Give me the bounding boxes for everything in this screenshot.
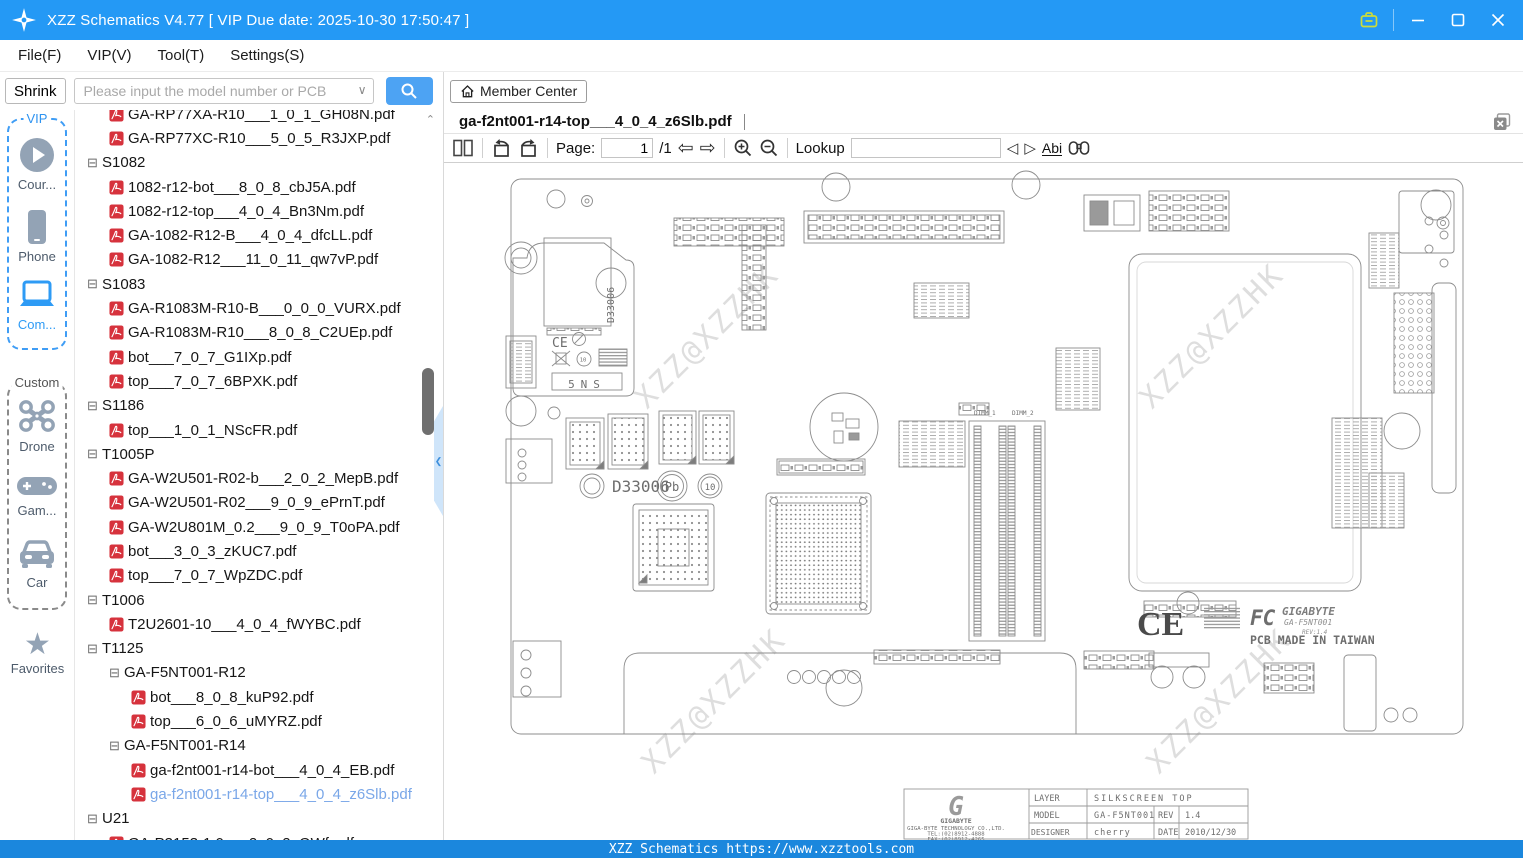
tree-item-label: S1082 bbox=[102, 154, 145, 171]
svg-text:XZZ@XZZHK: XZZ@XZZHK bbox=[635, 622, 794, 781]
sidebar-item-label: Cour... bbox=[18, 177, 56, 192]
tree-item-label: T1005P bbox=[102, 446, 155, 463]
tree-file[interactable]: GA-P3153-1.0___2_0_2_QWf.pdf bbox=[75, 831, 419, 840]
collapse-icon[interactable]: ⊟ bbox=[109, 665, 124, 681]
svg-text:GIGABYTE: GIGABYTE bbox=[940, 817, 971, 825]
pdf-icon bbox=[109, 495, 124, 510]
pdf-icon bbox=[109, 471, 124, 486]
tree-item-label: top___7_0_7_WpZDC.pdf bbox=[128, 567, 302, 584]
pdf-icon bbox=[109, 228, 124, 243]
tree-file[interactable]: top___7_0_7_WpZDC.pdf bbox=[75, 564, 419, 588]
two-page-view-icon[interactable] bbox=[452, 139, 474, 157]
collapse-icon[interactable]: ⊟ bbox=[87, 641, 102, 657]
page-label: Page: bbox=[556, 140, 595, 157]
svg-text:DESIGNER: DESIGNER bbox=[1031, 828, 1070, 837]
tree-item-label: 1082-r12-bot___8_0_8_cbJ5A.pdf bbox=[128, 179, 356, 196]
collapse-icon[interactable]: ⊟ bbox=[87, 811, 102, 827]
pdf-icon bbox=[109, 204, 124, 219]
tree-file[interactable]: top___7_0_7_6BPXK.pdf bbox=[75, 369, 419, 393]
page-total: /1 bbox=[659, 140, 672, 157]
scroll-up-icon[interactable]: ⌃ bbox=[426, 113, 435, 126]
collapse-icon[interactable]: ⊟ bbox=[87, 398, 102, 414]
close-all-tabs-icon[interactable] bbox=[1493, 113, 1511, 131]
highlight-all-icon[interactable] bbox=[1068, 139, 1090, 157]
car-icon bbox=[16, 538, 58, 572]
tree-item-label: GA-RP77XA-R10___1_0_1_GH08N.pdf bbox=[128, 110, 395, 123]
menu-settings[interactable]: Settings(S) bbox=[217, 47, 317, 64]
tree-file[interactable]: 1082-r12-bot___8_0_8_cbJ5A.pdf bbox=[75, 175, 419, 199]
svg-text:GA-F5NT001: GA-F5NT001 bbox=[1284, 618, 1332, 627]
phone-icon bbox=[20, 208, 54, 246]
match-case-toggle[interactable]: Abi bbox=[1042, 141, 1062, 156]
svg-text:GA-F5NT001: GA-F5NT001 bbox=[1094, 811, 1155, 821]
pdf-icon bbox=[109, 350, 124, 365]
member-center-label: Member Center bbox=[480, 83, 577, 99]
menu-bar: File(F) VIP(V) Tool(T) Settings(S) bbox=[0, 40, 1523, 72]
svg-text:GIGABYTE: GIGABYTE bbox=[1282, 605, 1335, 618]
tree-item-label: GA-W2U501-R02-b___2_0_2_MepB.pdf bbox=[128, 470, 398, 487]
pdf-icon bbox=[109, 568, 124, 583]
member-center-button[interactable]: Member Center bbox=[450, 80, 587, 103]
tree-item-label: GA-R1083M-R10___8_0_8_C2UEp.pdf bbox=[128, 324, 392, 341]
sidebar-item-label: Phone bbox=[18, 249, 56, 264]
tree-item-label: U21 bbox=[102, 810, 130, 827]
pdf-icon bbox=[109, 180, 124, 195]
collapse-icon[interactable]: ⊟ bbox=[87, 592, 102, 608]
sidebar-item-game[interactable]: Gam... bbox=[0, 472, 74, 520]
svg-text:2010/12/30: 2010/12/30 bbox=[1185, 828, 1236, 838]
lookup-input[interactable] bbox=[851, 138, 1001, 158]
tree-file[interactable]: GA-1082-R12___11_0_11_qw7vP.pdf bbox=[75, 248, 419, 272]
tree-file[interactable]: GA-W2U501-R02___9_0_9_ePrnT.pdf bbox=[75, 491, 419, 515]
star-icon: ★ bbox=[0, 630, 75, 660]
drone-icon bbox=[17, 398, 57, 436]
sidebar-item-label: Drone bbox=[19, 439, 54, 454]
titlebar-separator bbox=[1393, 9, 1394, 31]
page-forward-icon[interactable]: ⇨ bbox=[700, 139, 716, 158]
tree-item-label: T1006 bbox=[102, 592, 145, 609]
tree-folder[interactable]: ⊟GA-F5NT001-R14 bbox=[75, 734, 419, 758]
tree-item-label: bot___8_0_8_kuP92.pdf bbox=[150, 689, 313, 706]
tree-file[interactable]: ga-f2nt001-r14-top___4_0_4_z6Slb.pdf bbox=[75, 782, 419, 806]
tree-item-label: S1186 bbox=[102, 397, 144, 414]
viewer-toolbar: Page: /1 ⇦ ⇨ Lookup ◁ ▷ Abi bbox=[444, 134, 1523, 163]
menu-vip[interactable]: VIP(V) bbox=[74, 47, 144, 64]
shrink-button[interactable]: Shrink bbox=[5, 78, 66, 104]
tree-folder[interactable]: ⊟S1083 bbox=[75, 272, 419, 296]
tree-file[interactable]: GA-RP77XA-R10___1_0_1_GH08N.pdf bbox=[75, 110, 419, 126]
tree-file[interactable]: 1082-r12-top___4_0_4_Bn3Nm.pdf bbox=[75, 199, 419, 223]
tree-folder[interactable]: ⊟S1186 bbox=[75, 394, 419, 418]
tree-item-label: bot___7_0_7_G1IXp.pdf bbox=[128, 349, 291, 366]
tree-folder[interactable]: ⊟T1125 bbox=[75, 637, 419, 661]
tree-item-label: GA-P3153-1.0___2_0_2_QWf.pdf bbox=[128, 835, 354, 840]
sidebar-item-phone[interactable]: Phone bbox=[0, 208, 74, 266]
pdf-icon bbox=[109, 374, 124, 389]
pdf-icon bbox=[109, 423, 124, 438]
tree-item-label: T2U2601-10___4_0_4_fWYBC.pdf bbox=[128, 616, 361, 633]
tree-file[interactable]: GA-RP77XC-R10___5_0_5_R3JXP.pdf bbox=[75, 126, 419, 150]
svg-text:cherry: cherry bbox=[1094, 828, 1131, 838]
tree-folder[interactable]: ⊟S1082 bbox=[75, 151, 419, 175]
play-icon bbox=[18, 136, 56, 174]
tree-file[interactable]: GA-R1083M-R10___8_0_8_C2UEp.pdf bbox=[75, 321, 419, 345]
viewer-tab-bar: ga-f2nt001-r14-top___4_0_4_z6Slb.pdf bbox=[444, 110, 1523, 134]
sidebar-item-drone[interactable]: Drone bbox=[0, 398, 74, 456]
tree-item-label: GA-1082-R12___11_0_11_qw7vP.pdf bbox=[128, 251, 378, 268]
tree-scrollbar-thumb[interactable] bbox=[422, 368, 434, 435]
board-geometry bbox=[505, 171, 1463, 734]
svg-text:Pb: Pb bbox=[665, 480, 679, 494]
app-logo-icon bbox=[11, 7, 37, 33]
tree-item-label: GA-W2U801M_0.2___9_0_9_T0oPA.pdf bbox=[128, 519, 400, 536]
tree-item-label: top___7_0_7_6BPXK.pdf bbox=[128, 373, 297, 390]
menu-tool[interactable]: Tool(T) bbox=[145, 47, 218, 64]
sidebar-item-label: Gam... bbox=[17, 503, 56, 518]
pdf-icon bbox=[131, 763, 146, 778]
svg-text:CE: CE bbox=[552, 336, 568, 351]
svg-text:FC: FC bbox=[1250, 606, 1276, 630]
zoom-in-icon[interactable] bbox=[733, 138, 753, 158]
page-back-icon[interactable]: ⇦ bbox=[678, 139, 694, 158]
collapse-icon[interactable]: ⊟ bbox=[87, 446, 102, 462]
tab-separator bbox=[744, 114, 745, 130]
tree-folder[interactable]: ⊟GA-F5NT001-R12 bbox=[75, 661, 419, 685]
svg-text:DIMM_2: DIMM_2 bbox=[1012, 410, 1034, 417]
tree-file[interactable]: GA-W2U801M_0.2___9_0_9_T0oPA.pdf bbox=[75, 515, 419, 539]
pdf-icon bbox=[131, 690, 146, 705]
tree-item-label: bot___3_0_3_zKUC7.pdf bbox=[128, 543, 296, 560]
pdf-icon bbox=[109, 110, 124, 122]
svg-text:REV: REV bbox=[1158, 811, 1173, 821]
tree-folder[interactable]: ⊟T1005P bbox=[75, 442, 419, 466]
status-bar: XZZ Schematics https://www.xzztools.com bbox=[0, 840, 1523, 858]
collapse-icon[interactable]: ⊟ bbox=[109, 738, 124, 754]
svg-text:10: 10 bbox=[705, 483, 716, 493]
svg-text:CE: CE bbox=[1137, 606, 1184, 643]
watermarks: XZZ@XZZHK XZZ@XZZHK XZZ@XZZHK XZZ@XZZHK bbox=[628, 257, 1299, 781]
tree-file[interactable]: GA-R1083M-R10-B___0_0_0_VURX.pdf bbox=[75, 296, 419, 320]
svg-text:SILKSCREEN TOP: SILKSCREEN TOP bbox=[1094, 794, 1194, 804]
tree-file[interactable]: top___1_0_1_NScFR.pdf bbox=[75, 418, 419, 442]
sidebar-item-favorites[interactable]: ★ Favorites bbox=[0, 630, 75, 678]
svg-text:LAYER: LAYER bbox=[1034, 794, 1060, 804]
vip-group-label: VIP bbox=[24, 111, 51, 126]
pdf-icon bbox=[109, 131, 124, 146]
gamepad-icon bbox=[15, 472, 59, 500]
custom-group-label: Custom bbox=[12, 375, 63, 390]
find-previous-icon[interactable]: ◁ bbox=[1007, 139, 1019, 157]
rotate-right-icon[interactable] bbox=[518, 138, 539, 158]
tree-folder[interactable]: ⊟U21 bbox=[75, 807, 419, 831]
tree-item-label: ga-f2nt001-r14-bot___4_0_4_EB.pdf bbox=[150, 762, 394, 779]
tree-item-label: S1083 bbox=[102, 276, 145, 293]
category-rail: VIP Cour... Phone Com... Custom bbox=[0, 110, 75, 840]
pcb-silkscreen-drawing: XZZ@XZZHK XZZ@XZZHK XZZ@XZZHK XZZ@XZZHK bbox=[444, 163, 1523, 840]
svg-text:10: 10 bbox=[580, 358, 587, 364]
maximize-button[interactable] bbox=[1447, 9, 1469, 31]
lookup-label: Lookup bbox=[796, 140, 845, 157]
svg-text:XZZ@XZZHK: XZZ@XZZHK bbox=[1133, 257, 1292, 416]
tree-item-label: GA-W2U501-R02___9_0_9_ePrnT.pdf bbox=[128, 494, 385, 511]
page-number-input[interactable] bbox=[601, 138, 653, 158]
tree-item-label: 1082-r12-top___4_0_4_Bn3Nm.pdf bbox=[128, 203, 364, 220]
svg-text:D33006: D33006 bbox=[606, 287, 617, 323]
tree-item-label: GA-1082-R12-B___4_0_4_dfcLL.pdf bbox=[128, 227, 372, 244]
collapse-icon[interactable]: ⊟ bbox=[87, 276, 102, 292]
search-icon bbox=[400, 82, 418, 100]
home-icon bbox=[460, 84, 475, 99]
svg-text:D33006: D33006 bbox=[612, 477, 670, 496]
collapse-icon[interactable]: ⊟ bbox=[87, 155, 102, 171]
file-tree-panel: GA-RP77XA-R10___1_0_1_GH08N.pdfGA-RP77XC… bbox=[75, 110, 443, 840]
model-search-input[interactable] bbox=[74, 78, 374, 104]
sidebar-item-label: Favorites bbox=[11, 661, 64, 676]
sidebar-item-label: Com... bbox=[18, 317, 56, 332]
tree-item-label: GA-F5NT001-R14 bbox=[124, 737, 246, 754]
pdf-icon bbox=[109, 325, 124, 340]
tree-file[interactable]: top___6_0_6_uMYRZ.pdf bbox=[75, 709, 419, 733]
window-title: XZZ Schematics V4.77 [ VIP Due date: 202… bbox=[47, 12, 469, 29]
tree-item-label: T1125 bbox=[102, 640, 143, 657]
pdf-icon bbox=[109, 836, 124, 840]
pdf-viewer: ga-f2nt001-r14-top___4_0_4_z6Slb.pdf bbox=[443, 110, 1523, 840]
tree-file[interactable]: GA-W2U501-R02-b___2_0_2_MepB.pdf bbox=[75, 466, 419, 490]
rotate-left-icon[interactable] bbox=[491, 138, 512, 158]
laptop-icon bbox=[17, 278, 57, 314]
tree-item-label: GA-F5NT001-R12 bbox=[124, 664, 246, 681]
tree-file[interactable]: bot___3_0_3_zKUC7.pdf bbox=[75, 539, 419, 563]
tree-item-label: GA-RP77XC-R10___5_0_5_R3JXP.pdf bbox=[128, 130, 390, 147]
sidebar-item-course[interactable]: Cour... bbox=[0, 136, 74, 194]
tree-item-label: GA-R1083M-R10-B___0_0_0_VURX.pdf bbox=[128, 300, 401, 317]
chevron-down-icon[interactable]: ∨ bbox=[358, 83, 367, 97]
tree-file[interactable]: bot___8_0_8_kuP92.pdf bbox=[75, 685, 419, 709]
tree-file[interactable]: GA-1082-R12-B___4_0_4_dfcLL.pdf bbox=[75, 223, 419, 247]
file-tree: GA-RP77XA-R10___1_0_1_GH08N.pdfGA-RP77XC… bbox=[75, 110, 419, 840]
zoom-out-icon[interactable] bbox=[759, 138, 779, 158]
tree-file[interactable]: ga-f2nt001-r14-bot___4_0_4_EB.pdf bbox=[75, 758, 419, 782]
sidebar-item-car[interactable]: Car bbox=[0, 538, 74, 592]
tree-item-label: top___6_0_6_uMYRZ.pdf bbox=[150, 713, 322, 730]
svg-text:MODEL: MODEL bbox=[1034, 811, 1060, 821]
pdf-icon bbox=[131, 714, 146, 729]
pdf-icon bbox=[109, 301, 124, 316]
tree-item-label: ga-f2nt001-r14-top___4_0_4_z6Slb.pdf bbox=[150, 786, 412, 803]
pdf-icon bbox=[109, 617, 124, 632]
title-block-text: G GIGABYTE GIGA-BYTE TECHNOLOGY CO.,LTD.… bbox=[907, 792, 1236, 840]
collapse-panel-handle[interactable]: ❮ bbox=[434, 406, 443, 516]
chevron-left-icon: ❮ bbox=[435, 456, 443, 467]
tree-item-label: top___1_0_1_NScFR.pdf bbox=[128, 422, 297, 439]
search-row: Shrink ∨ Member Center bbox=[0, 72, 1523, 110]
tree-file[interactable]: bot___7_0_7_G1IXp.pdf bbox=[75, 345, 419, 369]
sidebar-item-computer[interactable]: Com... bbox=[0, 278, 74, 334]
tab-pdf[interactable]: ga-f2nt001-r14-top___4_0_4_z6Slb.pdf bbox=[459, 113, 732, 130]
svg-text:FAX:(02)8912-4265: FAX:(02)8912-4265 bbox=[927, 837, 984, 840]
menu-file[interactable]: File(F) bbox=[0, 47, 74, 64]
svg-text:PCB MADE IN TAIWAN: PCB MADE IN TAIWAN bbox=[1250, 633, 1375, 647]
svg-text:DIMM_1: DIMM_1 bbox=[974, 410, 996, 417]
svg-text:1.4: 1.4 bbox=[1185, 811, 1200, 821]
pdf-canvas[interactable]: XZZ@XZZHK XZZ@XZZHK XZZ@XZZHK XZZ@XZZHK bbox=[444, 163, 1523, 840]
search-button[interactable] bbox=[386, 77, 433, 105]
close-button[interactable] bbox=[1487, 9, 1509, 31]
pdf-icon bbox=[131, 787, 146, 802]
svg-text:5NS: 5NS bbox=[568, 378, 606, 391]
tree-file[interactable]: T2U2601-10___4_0_4_fWYBC.pdf bbox=[75, 612, 419, 636]
find-next-icon[interactable]: ▷ bbox=[1024, 139, 1036, 157]
sidebar-item-label: Car bbox=[27, 575, 48, 590]
status-text: XZZ Schematics https://www.xzztools.com bbox=[609, 842, 914, 857]
pdf-icon bbox=[109, 544, 124, 559]
minimize-button[interactable] bbox=[1407, 9, 1429, 31]
tree-folder[interactable]: ⊟T1006 bbox=[75, 588, 419, 612]
title-bar: XZZ Schematics V4.77 [ VIP Due date: 202… bbox=[0, 0, 1523, 40]
toolbox-icon[interactable] bbox=[1358, 9, 1380, 31]
svg-text:DATE: DATE bbox=[1158, 828, 1178, 838]
pdf-icon bbox=[109, 252, 124, 267]
pdf-icon bbox=[109, 520, 124, 535]
